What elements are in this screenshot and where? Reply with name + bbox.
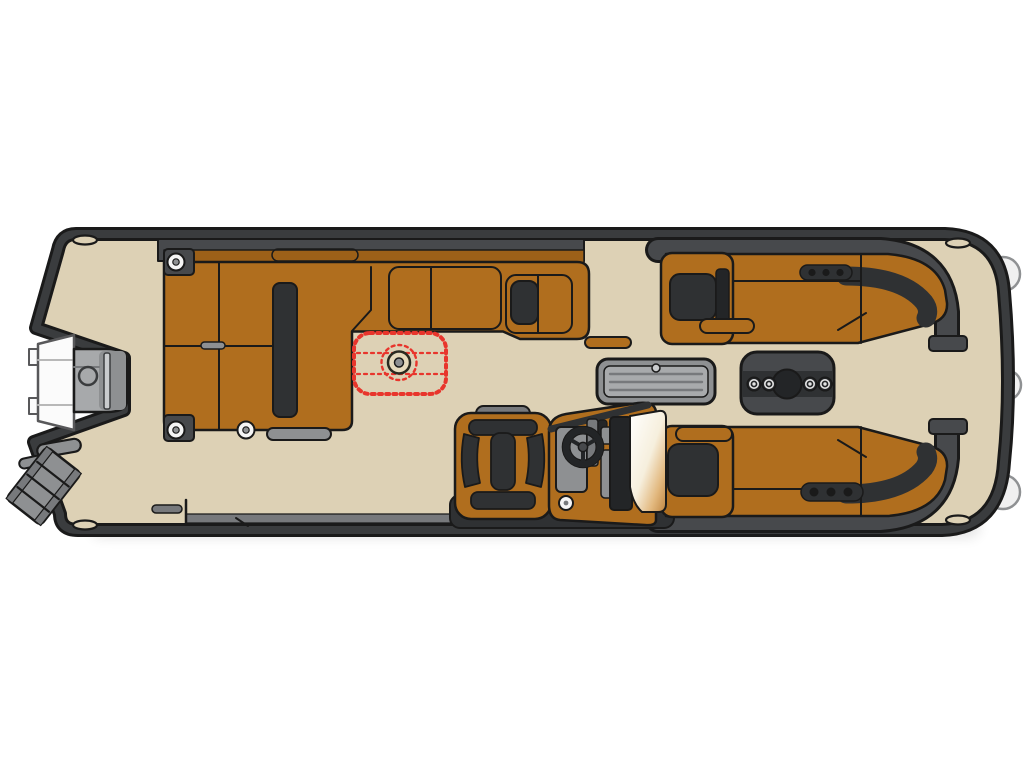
cupholder-table: [741, 352, 834, 414]
step-pad: [267, 428, 331, 440]
pontoon-boat-floorplan: [0, 0, 1024, 768]
deck-fitting: [585, 337, 631, 348]
pontoon-floorplan-canvas: [0, 0, 1024, 768]
windshield-frame: [610, 417, 632, 510]
captain-chair: [455, 413, 551, 519]
bow-lounge-bottom: [661, 426, 947, 517]
storage-hatch: [597, 359, 715, 404]
bow-lounge-top: [661, 253, 947, 344]
backrest-cushion: [273, 283, 297, 417]
helm-station: [455, 403, 666, 525]
steering-wheel: [563, 427, 604, 468]
windshield: [630, 411, 666, 512]
